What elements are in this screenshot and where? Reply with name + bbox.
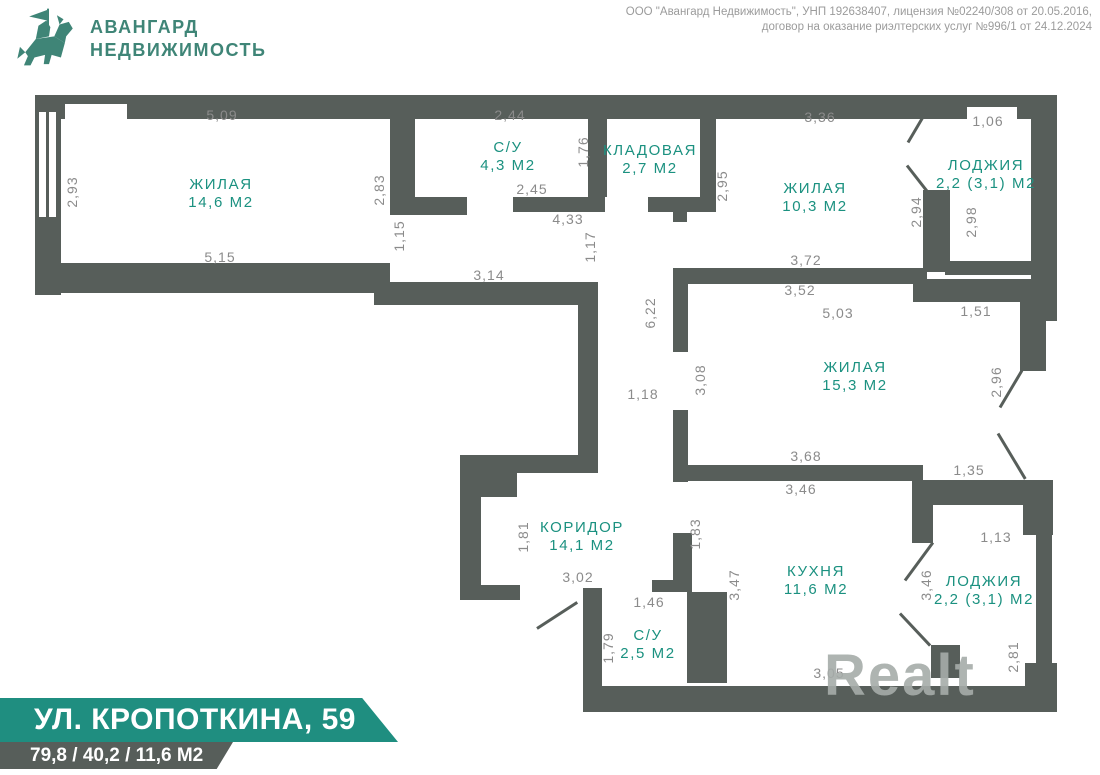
room-name: ЛОДЖИЯ: [936, 157, 1036, 175]
door-swing-line: [536, 601, 578, 630]
window-icon: [49, 112, 56, 217]
dimension-label: 2,81: [1005, 641, 1021, 672]
wall-segment: [912, 480, 933, 543]
wall-segment: [583, 686, 1057, 712]
room-label-loggia1: ЛОДЖИЯ 2,2 (3,1) М2: [936, 157, 1036, 193]
door-swing-line: [906, 164, 929, 193]
dimension-label: 5,03: [822, 305, 853, 321]
wall-segment: [460, 455, 481, 600]
dimension-label: 2,94: [908, 196, 924, 227]
wall-segment: [35, 263, 390, 293]
dimension-label: 3,14: [473, 267, 504, 283]
room-area: 15,3 М2: [822, 377, 887, 395]
room-label-living2: ЖИЛАЯ 10,3 М2: [782, 180, 847, 216]
wall-segment: [1023, 480, 1053, 535]
room-name: КЛАДОВАЯ: [603, 142, 697, 160]
dimension-label: 3,72: [790, 252, 821, 268]
dimension-label: 2,98: [963, 206, 979, 237]
dimension-label: 1,15: [391, 220, 407, 251]
knight-horse-logo-icon: [16, 6, 82, 72]
dimension-label: 6,22: [642, 297, 658, 328]
room-area: 2,2 (3,1) М2: [936, 175, 1036, 193]
room-area: 10,3 М2: [782, 198, 847, 216]
dimension-label: 1,35: [953, 462, 984, 478]
dimension-label: 3,08: [692, 364, 708, 395]
dimension-label: 5,09: [206, 107, 237, 123]
wall-segment: [1036, 530, 1052, 680]
wall-segment: [513, 197, 605, 212]
dimension-label: 2,95: [714, 170, 730, 201]
dimension-label: 3,47: [726, 569, 742, 600]
wall-notch: [65, 104, 127, 119]
dimension-label: 2,93: [64, 176, 80, 207]
dimension-label: 4,33: [552, 211, 583, 227]
room-label-bathroom1: С/У 4,3 М2: [480, 139, 535, 175]
room-area: 14,1 М2: [540, 537, 624, 555]
company-info-line1: ООО "Авангард Недвижимость", УНП 1926384…: [626, 5, 1092, 20]
dimension-label: 1,46: [633, 594, 664, 610]
room-name: ЖИЛАЯ: [188, 176, 253, 194]
agency-name-line2: НЕДВИЖИМОСТЬ: [90, 39, 266, 62]
room-label-storage: КЛАДОВАЯ 2,7 М2: [603, 142, 697, 178]
door-swing-line: [899, 612, 931, 646]
dimension-label: 1,79: [600, 632, 616, 663]
wall-segment: [673, 268, 688, 352]
address-banner: УЛ. КРОПОТКИНА, 59: [0, 698, 398, 742]
dimension-label: 3,36: [804, 109, 835, 125]
wall-segment: [578, 282, 598, 473]
dimension-label: 3,52: [784, 282, 815, 298]
room-label-corridor: КОРИДОР 14,1 М2: [540, 519, 624, 555]
room-label-living3: ЖИЛАЯ 15,3 М2: [822, 359, 887, 395]
wall-segment: [945, 261, 1035, 275]
company-info: ООО "Авангард Недвижимость", УНП 1926384…: [626, 5, 1092, 35]
wall-segment: [673, 410, 688, 482]
room-area: 2,7 М2: [603, 160, 697, 178]
realt-watermark: Realt: [824, 642, 976, 709]
room-area: 14,6 М2: [188, 194, 253, 212]
company-info-line2: договор на оказание риэлтерских услуг №9…: [626, 20, 1092, 35]
dimension-label: 1,81: [515, 521, 531, 552]
agency-name: АВАНГАРД НЕДВИЖИМОСТЬ: [90, 16, 266, 62]
wall-segment: [460, 585, 520, 600]
dimension-label: 3,68: [790, 448, 821, 464]
wall-segment: [913, 279, 1022, 302]
room-name: ЖИЛАЯ: [822, 359, 887, 377]
room-name: С/У: [620, 627, 675, 645]
dimension-label: 3,46: [785, 481, 816, 497]
wall-segment: [673, 212, 687, 222]
wall-segment: [35, 95, 1057, 119]
dimension-label: 2,96: [988, 366, 1004, 397]
room-name: КОРИДОР: [540, 519, 624, 537]
dimension-label: 1,06: [972, 113, 1003, 129]
floor-plan-page: АВАНГАРД НЕДВИЖИМОСТЬ ООО "Авангард Недв…: [0, 0, 1100, 775]
wall-segment: [673, 555, 687, 582]
wall-segment: [1020, 279, 1046, 371]
room-label-kitchen: КУХНЯ 11,6 М2: [784, 563, 848, 599]
room-area: 2,5 М2: [620, 645, 675, 663]
room-area: 4,3 М2: [480, 157, 535, 175]
room-area: 11,6 М2: [784, 581, 848, 599]
dimension-label: 5,15: [204, 249, 235, 265]
dimension-label: 3,46: [918, 569, 934, 600]
room-name: ЛОДЖИЯ: [934, 573, 1034, 591]
dimension-label: 1,83: [687, 518, 703, 549]
room-label-living1: ЖИЛАЯ 14,6 М2: [188, 176, 253, 212]
dimension-label: 2,44: [494, 107, 525, 123]
agency-logo: АВАНГАРД НЕДВИЖИМОСТЬ: [16, 6, 266, 72]
dimension-label: 1,51: [960, 303, 991, 319]
wall-segment: [687, 592, 727, 683]
wall-segment: [687, 465, 923, 481]
dimension-label: 2,45: [516, 181, 547, 197]
door-swing-line: [997, 432, 1027, 479]
wall-segment: [923, 190, 950, 272]
room-label-loggia2: ЛОДЖИЯ 2,2 (3,1) М2: [934, 573, 1034, 609]
dimension-label: 2,83: [371, 174, 387, 205]
agency-name-line1: АВАНГАРД: [90, 16, 266, 39]
wall-segment: [374, 282, 598, 305]
dimension-label: 1,76: [575, 136, 591, 167]
dimension-label: 3,02: [562, 569, 593, 585]
room-area: 2,2 (3,1) М2: [934, 591, 1034, 609]
room-name: ЖИЛАЯ: [782, 180, 847, 198]
areas-banner: 79,8 / 40,2 / 11,6 М2: [0, 742, 233, 769]
wall-segment: [390, 197, 467, 215]
dimension-label: 1,13: [980, 529, 1011, 545]
wall-segment: [481, 473, 517, 497]
window-icon: [39, 112, 46, 217]
dimension-label: 1,17: [582, 231, 598, 262]
room-name: КУХНЯ: [784, 563, 848, 581]
room-label-bathroom2: С/У 2,5 М2: [620, 627, 675, 663]
dimension-label: 1,18: [627, 386, 658, 402]
room-name: С/У: [480, 139, 535, 157]
